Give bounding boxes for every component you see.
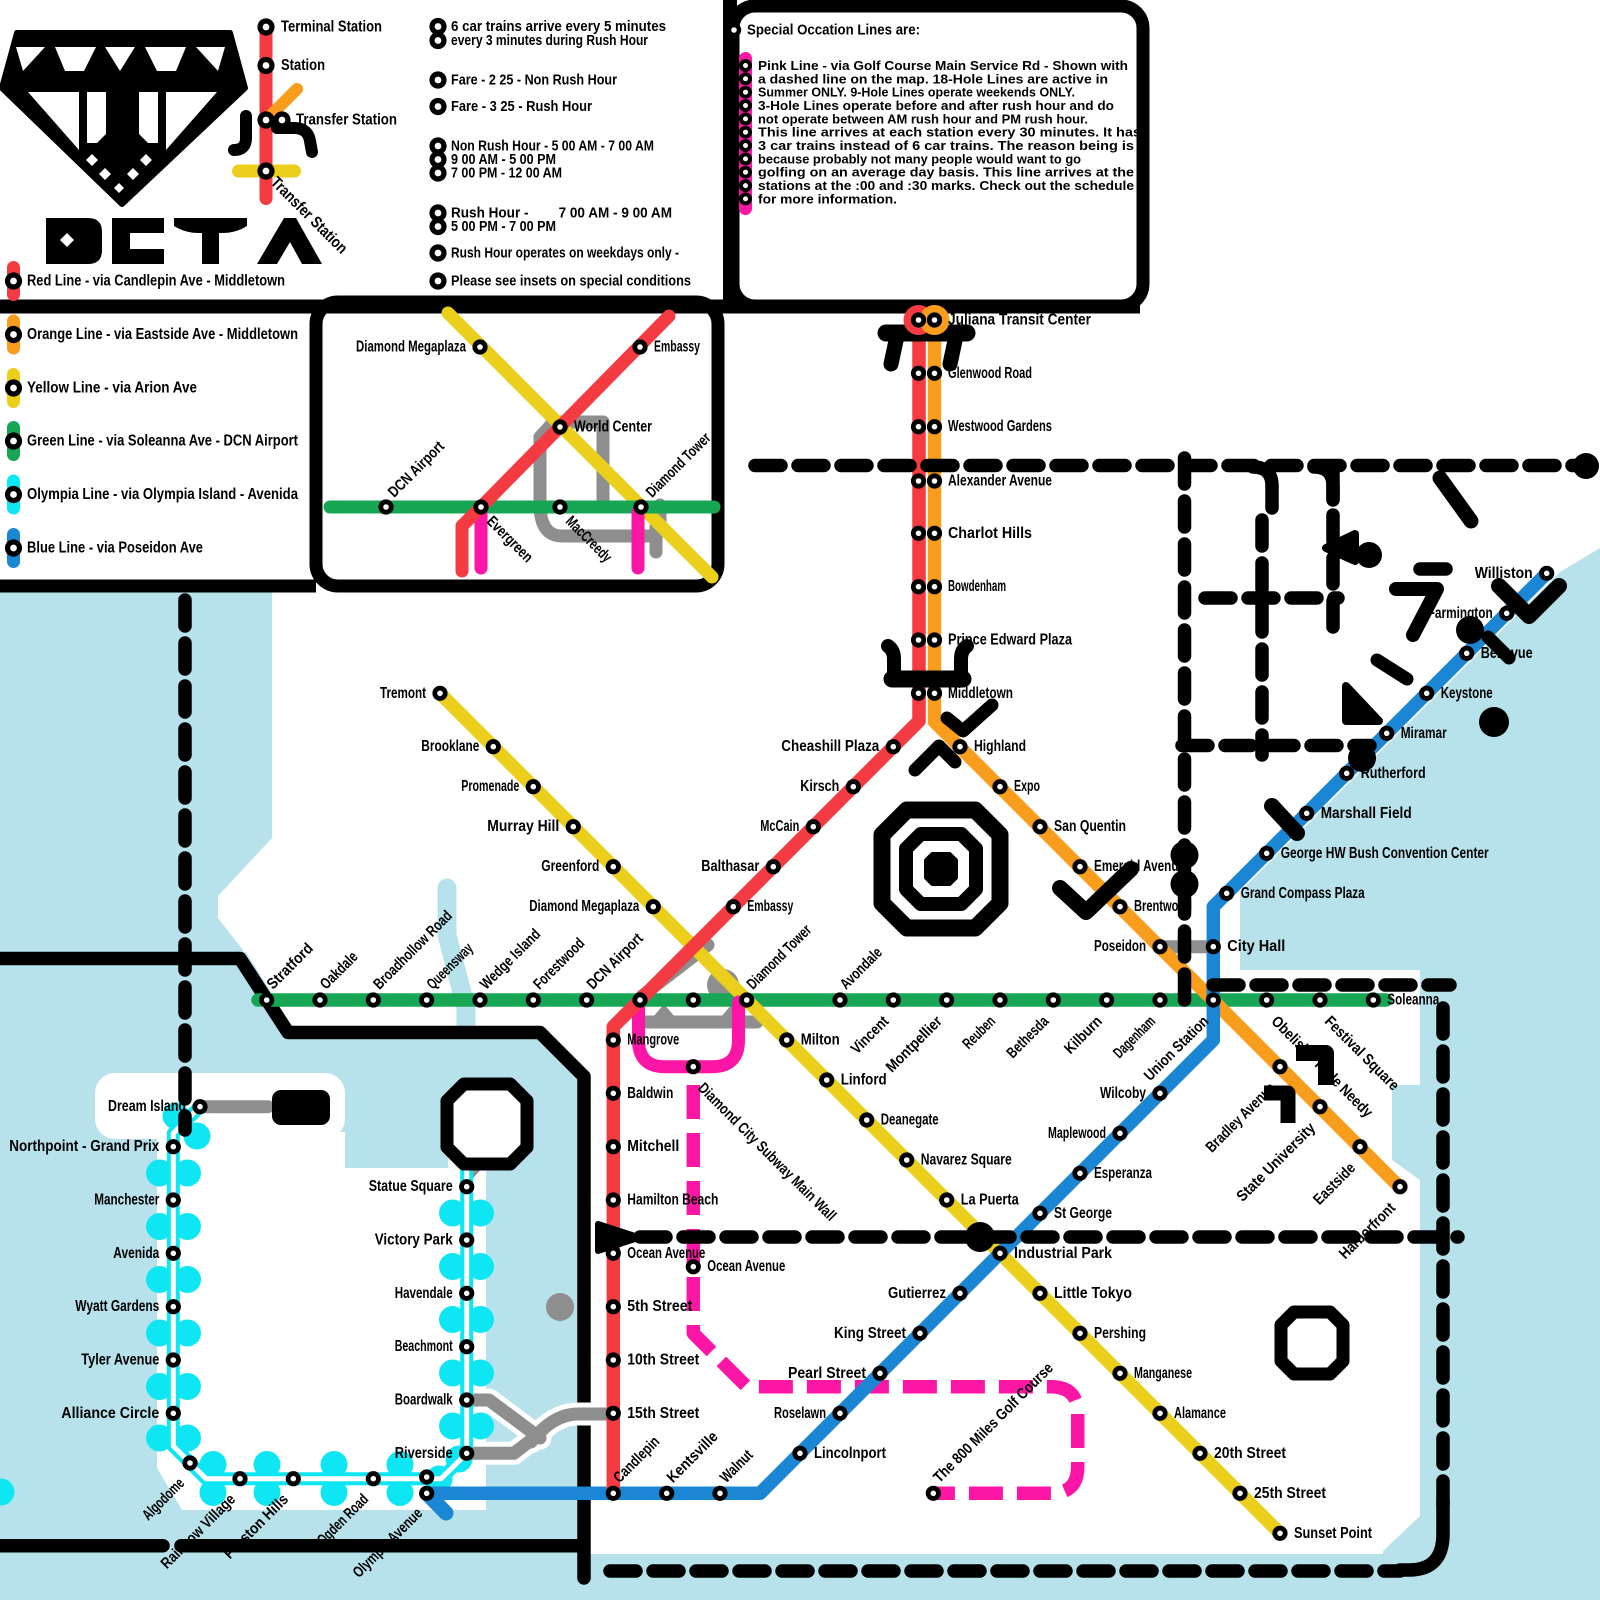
svg-text:Greenford: Greenford	[541, 858, 599, 875]
svg-text:Northpoint - Grand Prix: Northpoint - Grand Prix	[9, 1138, 159, 1155]
svg-text:Wilcoby: Wilcoby	[1100, 1085, 1146, 1102]
svg-text:15th Street: 15th Street	[627, 1405, 699, 1422]
svg-text:Gutierrez: Gutierrez	[888, 1285, 946, 1302]
svg-text:Westwood Gardens: Westwood Gardens	[948, 418, 1052, 435]
svg-text:Manganese: Manganese	[1134, 1365, 1192, 1382]
svg-text:Grand Compass Plaza: Grand Compass Plaza	[1241, 885, 1365, 902]
svg-text:Riverside: Riverside	[395, 1445, 453, 1462]
svg-text:Esperanza: Esperanza	[1094, 1165, 1152, 1182]
svg-text:25th Street: 25th Street	[1254, 1485, 1326, 1502]
svg-text:Brooklane: Brooklane	[421, 738, 479, 755]
svg-text:Marshall Field: Marshall Field	[1321, 805, 1412, 822]
svg-text:Promenade: Promenade	[461, 778, 519, 795]
svg-text:Yellow Line - via Arion Ave: Yellow Line - via Arion Ave	[27, 380, 197, 397]
svg-text:Alexander Avenue: Alexander Avenue	[948, 473, 1052, 490]
svg-text:Terminal Station: Terminal Station	[281, 19, 382, 36]
svg-text:Cheashill Plaza: Cheashill Plaza	[781, 738, 879, 755]
svg-text:every 3 minutes during Rush Ho: every 3 minutes during Rush Hour	[451, 32, 648, 49]
svg-text:Diamond Megaplaza: Diamond Megaplaza	[529, 898, 639, 915]
svg-text:Red Line - via Candlepin Ave -: Red Line - via Candlepin Ave - Middletow…	[27, 273, 285, 290]
svg-text:Lincolnport: Lincolnport	[814, 1445, 886, 1462]
svg-text:Victory Park: Victory Park	[375, 1232, 453, 1249]
svg-text:Mitchell: Mitchell	[627, 1138, 679, 1155]
svg-text:Juliana Transit Center: Juliana Transit Center	[948, 312, 1091, 329]
svg-text:Dream Island: Dream Island	[108, 1098, 186, 1115]
svg-text:Sunset Point: Sunset Point	[1294, 1525, 1372, 1542]
svg-text:Green Line - via Soleanna Ave: Green Line - via Soleanna Ave - DCN Airp…	[27, 433, 299, 450]
svg-text:Kirsch: Kirsch	[800, 778, 839, 795]
svg-text:Mangrove: Mangrove	[627, 1032, 679, 1049]
svg-text:Havendale: Havendale	[395, 1285, 453, 1302]
svg-text:Balthasar: Balthasar	[701, 858, 759, 875]
svg-text:Rutherford: Rutherford	[1361, 765, 1426, 782]
svg-text:San Quentin: San Quentin	[1054, 818, 1126, 835]
svg-text:Prince Edward Plaza: Prince Edward Plaza	[948, 632, 1072, 649]
svg-text:Navarez Square: Navarez Square	[921, 1152, 1012, 1169]
svg-text:Emerald Avenue: Emerald Avenue	[1094, 858, 1185, 875]
svg-text:Expo: Expo	[1014, 778, 1040, 795]
svg-text:7 00 PM - 12 00 AM: 7 00 PM - 12 00 AM	[451, 165, 562, 182]
svg-text:Tyler Avenue: Tyler Avenue	[81, 1352, 159, 1369]
svg-text:Statue Square: Statue Square	[369, 1178, 453, 1195]
svg-text:Alamance: Alamance	[1174, 1405, 1226, 1422]
svg-text:Little Tokyo: Little Tokyo	[1054, 1285, 1132, 1302]
svg-text:Blue Line - via Poseidon Ave: Blue Line - via Poseidon Ave	[27, 540, 203, 557]
svg-text:5 00 PM - 7 00 PM: 5 00 PM - 7 00 PM	[451, 218, 556, 235]
svg-text:Deanegate: Deanegate	[881, 1112, 939, 1129]
svg-text:Tremont: Tremont	[380, 685, 426, 702]
svg-text:Maplewood: Maplewood	[1048, 1125, 1106, 1142]
svg-text:Embassy: Embassy	[654, 339, 700, 356]
svg-text:Transfer Station: Transfer Station	[296, 112, 397, 129]
svg-text:Fare - 3 25 - Rush Hour: Fare - 3 25 - Rush Hour	[451, 98, 592, 115]
svg-text:Olympia Line - via Olympia Isl: Olympia Line - via Olympia Island - Aven…	[27, 486, 298, 503]
svg-text:Fare - 2 25 - Non Rush Hour: Fare - 2 25 - Non Rush Hour	[451, 72, 617, 89]
svg-text:Soleanna: Soleanna	[1387, 992, 1439, 1009]
svg-text:St George: St George	[1054, 1205, 1112, 1222]
svg-text:Pearl Street: Pearl Street	[788, 1365, 866, 1382]
svg-text:Boardwalk: Boardwalk	[395, 1392, 453, 1409]
svg-text:La Puerta: La Puerta	[961, 1192, 1019, 1209]
svg-text:Embassy: Embassy	[747, 898, 793, 915]
svg-text:George HW Bush Convention Cent: George HW Bush Convention Center	[1281, 845, 1489, 862]
svg-text:Linford: Linford	[841, 1072, 887, 1089]
svg-text:Middletown: Middletown	[948, 685, 1013, 702]
svg-text:Special Occation Lines are:: Special Occation Lines are:	[747, 22, 920, 39]
svg-text:5th Street: 5th Street	[627, 1298, 692, 1315]
svg-text:Beachmont: Beachmont	[395, 1338, 453, 1355]
svg-text:World Center: World Center	[574, 419, 652, 436]
svg-text:Avenida: Avenida	[113, 1245, 159, 1262]
svg-text:City Hall: City Hall	[1227, 938, 1285, 955]
svg-text:20th Street: 20th Street	[1214, 1445, 1286, 1462]
svg-text:10th Street: 10th Street	[627, 1352, 699, 1369]
svg-text:Milton: Milton	[801, 1032, 840, 1049]
svg-text:Keystone: Keystone	[1441, 685, 1493, 702]
svg-text:Farmington: Farmington	[1428, 605, 1493, 622]
svg-text:Murray Hill: Murray Hill	[487, 818, 559, 835]
svg-text:Bellevue: Bellevue	[1481, 645, 1533, 662]
svg-text:Rush Hour operates on weekdays: Rush Hour operates on weekdays only -	[451, 245, 679, 262]
svg-text:Glenwood Road: Glenwood Road	[948, 365, 1032, 382]
svg-text:Roselawn: Roselawn	[774, 1405, 826, 1422]
svg-text:Ocean Avenue: Ocean Avenue	[707, 1258, 785, 1275]
svg-text:Wyatt Gardens: Wyatt Gardens	[75, 1298, 159, 1315]
svg-text:McCain: McCain	[760, 818, 799, 835]
svg-text:Pershing: Pershing	[1094, 1325, 1146, 1342]
svg-text:Please see insets on special c: Please see insets on special conditions	[451, 273, 691, 290]
svg-text:Alliance Circle: Alliance Circle	[61, 1405, 159, 1422]
svg-text:Brentwood: Brentwood	[1134, 898, 1192, 915]
svg-text:for more information.: for more information.	[758, 191, 897, 206]
svg-text:Manchester: Manchester	[94, 1192, 159, 1209]
svg-text:Miramar: Miramar	[1401, 725, 1447, 742]
svg-text:Hamilton Beach: Hamilton Beach	[627, 1192, 718, 1209]
svg-text:Poseidon: Poseidon	[1094, 938, 1146, 955]
svg-text:Charlot Hills: Charlot Hills	[948, 525, 1032, 542]
svg-text:Diamond Megaplaza: Diamond Megaplaza	[356, 339, 466, 356]
svg-text:Orange Line - via Eastside Ave: Orange Line - via Eastside Ave - Middlet…	[27, 326, 298, 343]
svg-text:Station: Station	[281, 57, 325, 74]
svg-text:Industrial Park: Industrial Park	[1014, 1245, 1112, 1262]
svg-text:King Street: King Street	[834, 1325, 906, 1342]
svg-text:Williston: Williston	[1475, 565, 1533, 582]
svg-text:Bowdenham: Bowdenham	[948, 578, 1006, 595]
svg-text:Highland: Highland	[974, 738, 1026, 755]
svg-text:Baldwin: Baldwin	[627, 1085, 673, 1102]
